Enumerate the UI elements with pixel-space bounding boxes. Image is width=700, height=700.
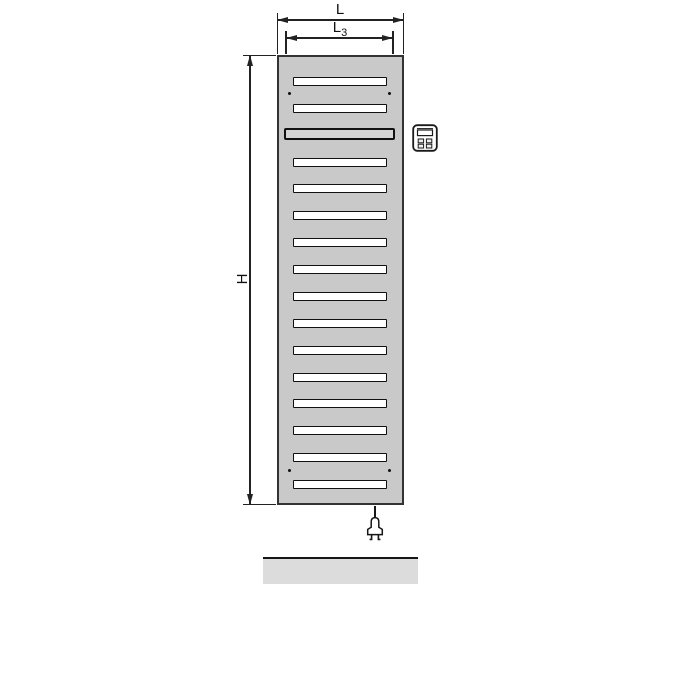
dim-inner-width-arrow-right xyxy=(382,35,393,41)
dim-inner-width-label-subscript: 3 xyxy=(341,27,347,39)
vent-slot xyxy=(293,77,387,86)
vent-slot xyxy=(293,453,387,462)
vent-slot xyxy=(293,480,387,489)
control-slot xyxy=(284,128,395,140)
screw-hole xyxy=(288,469,291,472)
dim-width-label: L xyxy=(320,2,360,18)
vent-slot xyxy=(293,426,387,435)
power-plug-icon xyxy=(360,516,390,546)
vent-slot xyxy=(293,238,387,247)
dim-inner-width-label: L3 xyxy=(320,20,360,41)
vent-slot xyxy=(293,104,387,113)
dim-height-arrow-bottom xyxy=(247,494,253,505)
dim-height-arrow-top xyxy=(247,55,253,66)
radiator-body xyxy=(277,55,404,505)
vent-slot xyxy=(293,346,387,355)
dim-height-label: H xyxy=(235,267,251,291)
dim-inner-width-arrow-left xyxy=(286,35,297,41)
screw-hole xyxy=(388,469,391,472)
dim-width-arrow-left xyxy=(277,17,288,23)
vent-slot xyxy=(293,319,387,328)
vent-slot xyxy=(293,292,387,301)
dim-width-label-text: L xyxy=(336,1,344,18)
diagram-canvas: L L3 H xyxy=(0,0,700,700)
dim-height-label-text: H xyxy=(234,274,251,285)
control-unit-icon xyxy=(412,124,438,152)
floor-bar xyxy=(263,557,418,584)
vent-slot xyxy=(293,373,387,382)
vent-slot xyxy=(293,211,387,220)
dim-width-arrow-right xyxy=(393,17,404,23)
vent-slot xyxy=(293,265,387,274)
screw-hole xyxy=(288,92,291,95)
vent-slot xyxy=(293,184,387,193)
dim-inner-width-label-text: L xyxy=(333,19,341,36)
vent-slot xyxy=(293,399,387,408)
vent-slot xyxy=(293,158,387,167)
screw-hole xyxy=(388,92,391,95)
